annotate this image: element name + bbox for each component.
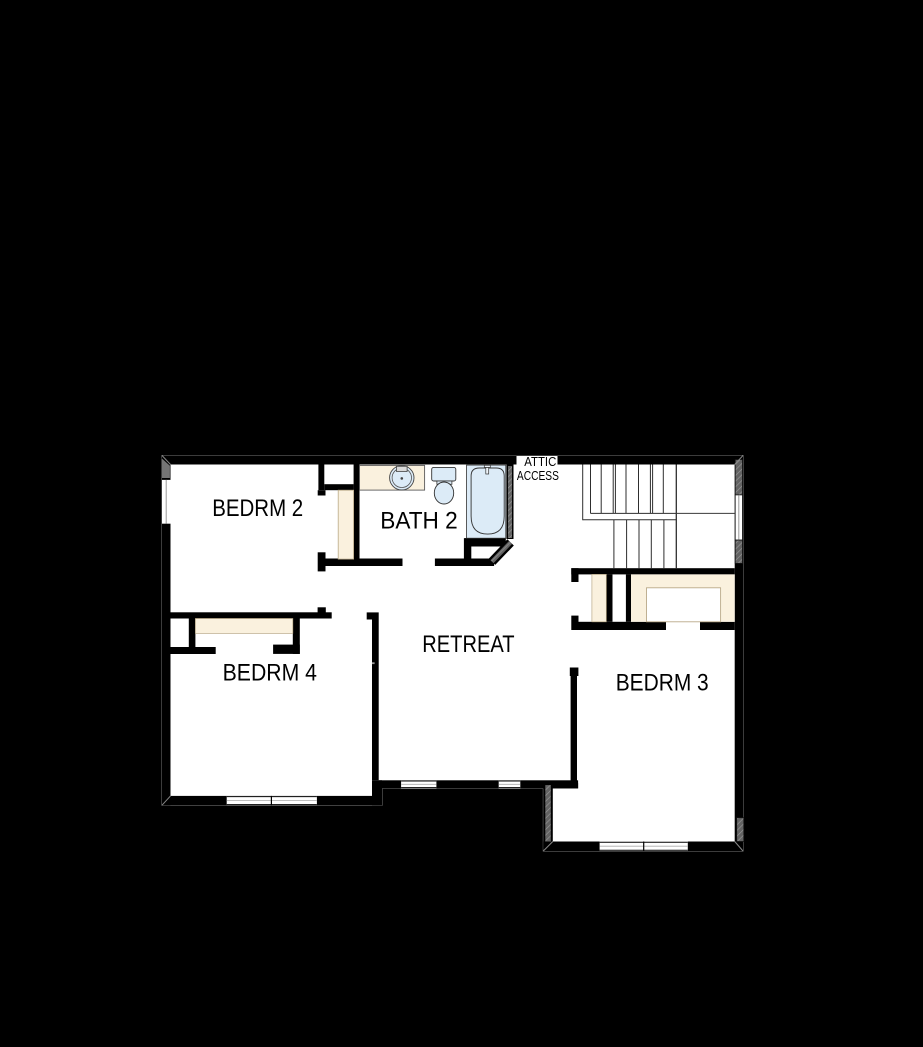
svg-text:BATH 2: BATH 2 bbox=[380, 508, 458, 535]
svg-text:BEDRM 2: BEDRM 2 bbox=[212, 495, 303, 522]
svg-text:BEDRM 4: BEDRM 4 bbox=[223, 659, 317, 686]
svg-text:ACCESS: ACCESS bbox=[517, 469, 559, 483]
svg-text:ATTIC: ATTIC bbox=[524, 455, 556, 469]
svg-text:RETREAT: RETREAT bbox=[422, 631, 515, 658]
svg-text:BEDRM 3: BEDRM 3 bbox=[616, 669, 709, 696]
